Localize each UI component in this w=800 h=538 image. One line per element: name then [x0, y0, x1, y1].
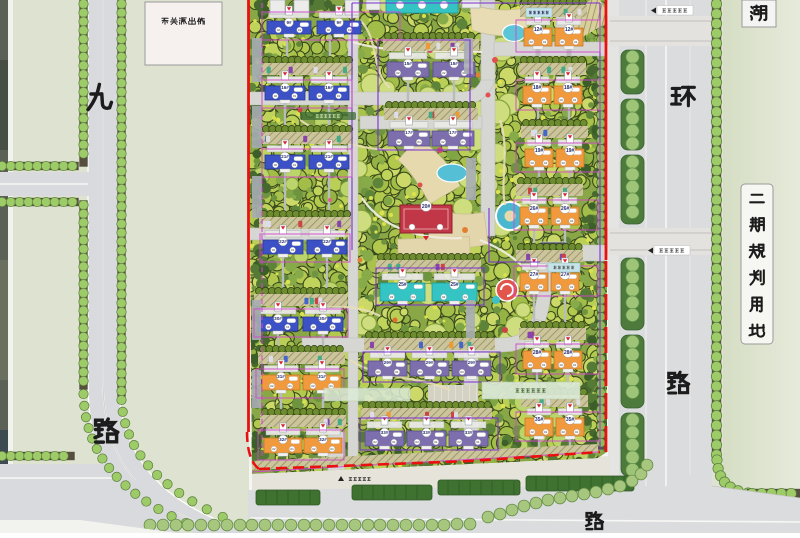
svg-text:01: 01 — [392, 440, 396, 444]
svg-text:02: 02 — [312, 447, 316, 451]
svg-text:02: 02 — [376, 370, 380, 374]
svg-text:01: 01 — [543, 40, 547, 44]
svg-text:26#: 26# — [530, 206, 539, 212]
svg-text:02: 02 — [531, 430, 535, 434]
svg-text:20#: 20# — [422, 204, 431, 210]
svg-text:28#: 28# — [564, 350, 573, 356]
svg-text:02: 02 — [457, 440, 461, 444]
svg-text:01: 01 — [464, 295, 468, 299]
svg-text:02: 02 — [272, 248, 276, 252]
svg-text:01: 01 — [286, 325, 290, 329]
svg-text:33#: 33# — [465, 430, 473, 435]
svg-text:17#: 17# — [449, 130, 457, 135]
svg-text:02: 02 — [526, 219, 530, 223]
svg-text:17#: 17# — [405, 130, 413, 135]
svg-text:01: 01 — [416, 71, 420, 75]
svg-text:15#: 15# — [404, 61, 412, 66]
svg-text:33#: 33# — [423, 430, 431, 435]
svg-text:16#: 16# — [281, 85, 289, 90]
svg-text:02: 02 — [267, 325, 271, 329]
svg-text:01: 01 — [288, 384, 292, 388]
svg-text:02: 02 — [557, 219, 561, 223]
svg-text:01: 01 — [348, 28, 352, 32]
svg-text:02: 02 — [557, 285, 561, 289]
svg-text:01: 01 — [293, 163, 297, 167]
svg-text:25#: 25# — [398, 282, 407, 288]
svg-text:01: 01 — [542, 363, 546, 367]
svg-text:01: 01 — [570, 219, 574, 223]
svg-text:32#: 32# — [279, 437, 287, 442]
svg-text:01: 01 — [335, 248, 339, 252]
svg-text:02: 02 — [327, 28, 331, 32]
svg-text:19#: 19# — [535, 148, 544, 154]
svg-text:30#: 30# — [274, 316, 282, 321]
svg-text:01: 01 — [291, 248, 295, 252]
svg-text:02: 02 — [441, 140, 445, 144]
svg-text:02: 02 — [373, 440, 377, 444]
svg-text:02: 02 — [529, 363, 533, 367]
svg-text:01: 01 — [476, 440, 480, 444]
svg-text:01: 01 — [293, 94, 297, 98]
svg-text:01: 01 — [544, 161, 548, 165]
svg-text:02: 02 — [396, 71, 400, 75]
svg-text:9#: 9# — [286, 20, 292, 25]
svg-text:02: 02 — [318, 163, 322, 167]
svg-text:02: 02 — [316, 248, 320, 252]
svg-text:02: 02 — [312, 325, 316, 329]
svg-text:27#: 27# — [530, 272, 539, 278]
svg-text:12#: 12# — [534, 27, 543, 33]
svg-text:01: 01 — [412, 295, 416, 299]
svg-text:01: 01 — [542, 98, 546, 102]
svg-text:01: 01 — [574, 40, 578, 44]
svg-text:29#: 29# — [384, 360, 392, 365]
svg-text:30#: 30# — [319, 316, 327, 321]
svg-text:01: 01 — [437, 370, 441, 374]
svg-text:01: 01 — [330, 447, 334, 451]
svg-text:01: 01 — [539, 285, 543, 289]
svg-text:18#: 18# — [564, 85, 573, 91]
svg-text:02: 02 — [531, 161, 535, 165]
svg-text:01: 01 — [298, 28, 302, 32]
svg-text:02: 02 — [560, 98, 564, 102]
svg-text:02: 02 — [460, 370, 464, 374]
svg-text:35#: 35# — [566, 417, 575, 423]
svg-text:31#: 31# — [318, 374, 326, 379]
svg-text:02: 02 — [442, 71, 446, 75]
svg-text:02: 02 — [274, 163, 278, 167]
svg-text:01: 01 — [395, 370, 399, 374]
svg-text:32#: 32# — [319, 437, 327, 442]
svg-text:18#: 18# — [533, 85, 542, 91]
svg-text:02: 02 — [560, 363, 564, 367]
svg-text:02: 02 — [397, 140, 401, 144]
svg-text:01: 01 — [329, 384, 333, 388]
svg-text:01: 01 — [573, 98, 577, 102]
svg-text:01: 01 — [290, 447, 294, 451]
svg-text:02: 02 — [526, 285, 530, 289]
svg-text:01: 01 — [434, 440, 438, 444]
svg-text:25#: 25# — [450, 282, 459, 288]
svg-text:01: 01 — [479, 370, 483, 374]
svg-text:31#: 31# — [277, 374, 285, 379]
svg-text:01: 01 — [573, 363, 577, 367]
svg-text:02: 02 — [415, 440, 419, 444]
svg-text:21#: 21# — [325, 154, 333, 159]
svg-text:21#: 21# — [281, 154, 289, 159]
svg-text:28#: 28# — [533, 350, 542, 356]
svg-text:02: 02 — [562, 430, 566, 434]
svg-text:29#: 29# — [426, 360, 434, 365]
svg-text:27#: 27# — [561, 272, 570, 278]
svg-text:02: 02 — [318, 94, 322, 98]
svg-text:02: 02 — [529, 98, 533, 102]
svg-text:35#: 35# — [535, 417, 544, 423]
svg-text:02: 02 — [530, 40, 534, 44]
svg-text:22#: 22# — [323, 239, 331, 244]
svg-text:02: 02 — [272, 447, 276, 451]
svg-text:12#: 12# — [565, 27, 574, 33]
svg-text:01: 01 — [575, 430, 579, 434]
svg-text:02: 02 — [311, 384, 315, 388]
svg-text:02: 02 — [418, 370, 422, 374]
svg-text:01: 01 — [539, 219, 543, 223]
svg-text:33#: 33# — [381, 430, 389, 435]
svg-text:01: 01 — [461, 140, 465, 144]
svg-text:01: 01 — [337, 94, 341, 98]
svg-text:02: 02 — [442, 295, 446, 299]
svg-text:26#: 26# — [561, 206, 570, 212]
svg-text:29#: 29# — [468, 360, 476, 365]
svg-text:02: 02 — [274, 94, 278, 98]
svg-text:01: 01 — [575, 161, 579, 165]
svg-text:15#: 15# — [450, 61, 458, 66]
svg-text:02: 02 — [390, 295, 394, 299]
svg-text:02: 02 — [277, 28, 281, 32]
svg-text:02: 02 — [562, 161, 566, 165]
svg-text:01: 01 — [570, 285, 574, 289]
svg-text:01: 01 — [544, 430, 548, 434]
svg-text:02: 02 — [270, 384, 274, 388]
svg-text:01: 01 — [417, 140, 421, 144]
svg-text:02: 02 — [561, 40, 565, 44]
svg-text:01: 01 — [331, 325, 335, 329]
svg-text:9#: 9# — [336, 20, 342, 25]
svg-text:22#: 22# — [279, 239, 287, 244]
svg-text:16#: 16# — [325, 85, 333, 90]
svg-text:19#: 19# — [566, 148, 575, 154]
svg-text:01: 01 — [337, 163, 341, 167]
